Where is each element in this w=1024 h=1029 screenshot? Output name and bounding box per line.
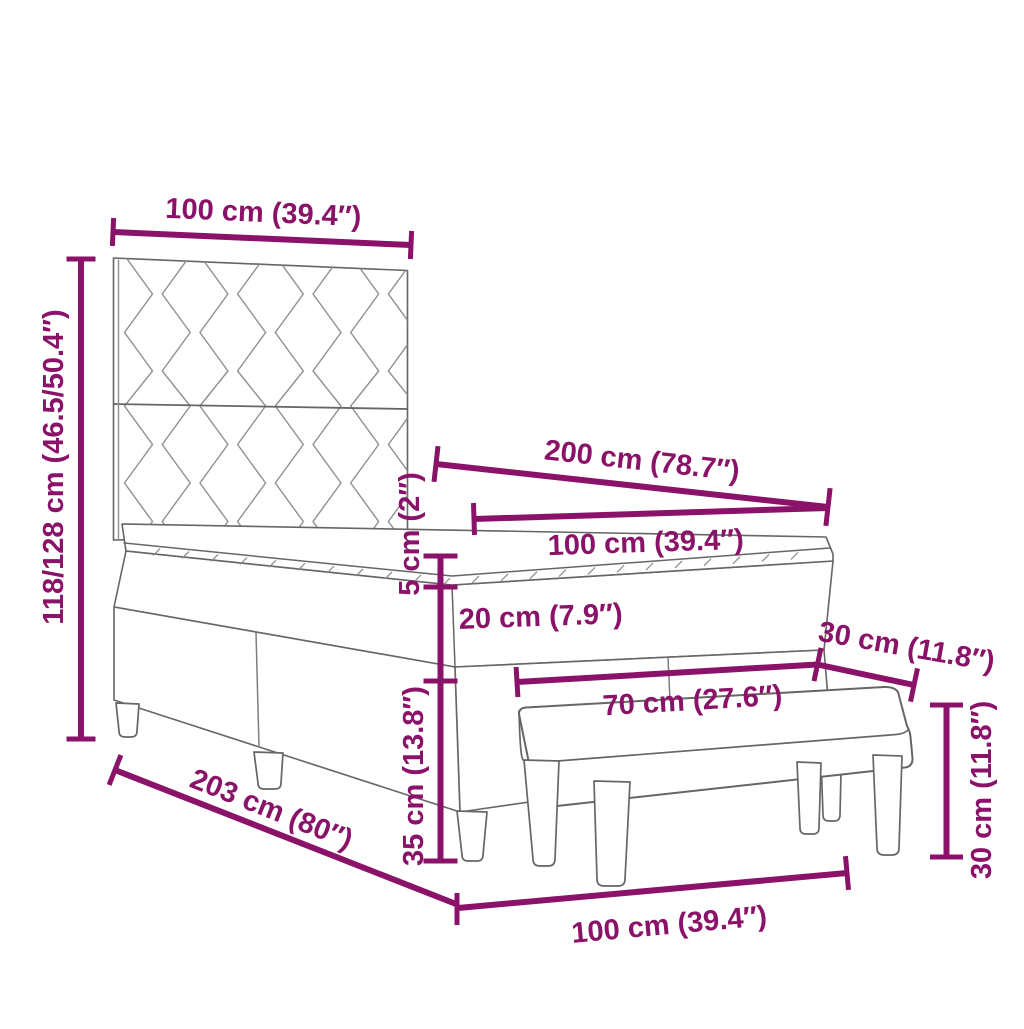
svg-text:5 cm (2″): 5 cm (2″) [394,472,426,596]
svg-text:100 cm (39.4″): 100 cm (39.4″) [547,524,744,562]
svg-text:35 cm (13.8″): 35 cm (13.8″) [398,686,430,866]
svg-text:118/128 cm (46.5/50.4″): 118/128 cm (46.5/50.4″) [38,309,70,624]
svg-text:30 cm (11.8″): 30 cm (11.8″) [966,701,998,879]
svg-text:20 cm (7.9″): 20 cm (7.9″) [458,598,623,636]
